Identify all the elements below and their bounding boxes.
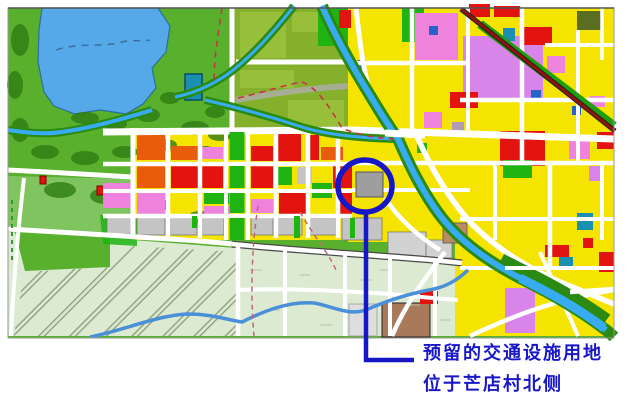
reserved-transport-parcel [356, 172, 383, 197]
annotation-line-2: 位于芒店村北侧 [423, 370, 563, 396]
annotation-line-1: 预留的交通设施用地 [423, 339, 603, 365]
planning-map-figure: 预留的交通设施用地 位于芒店村北侧 [0, 0, 640, 402]
